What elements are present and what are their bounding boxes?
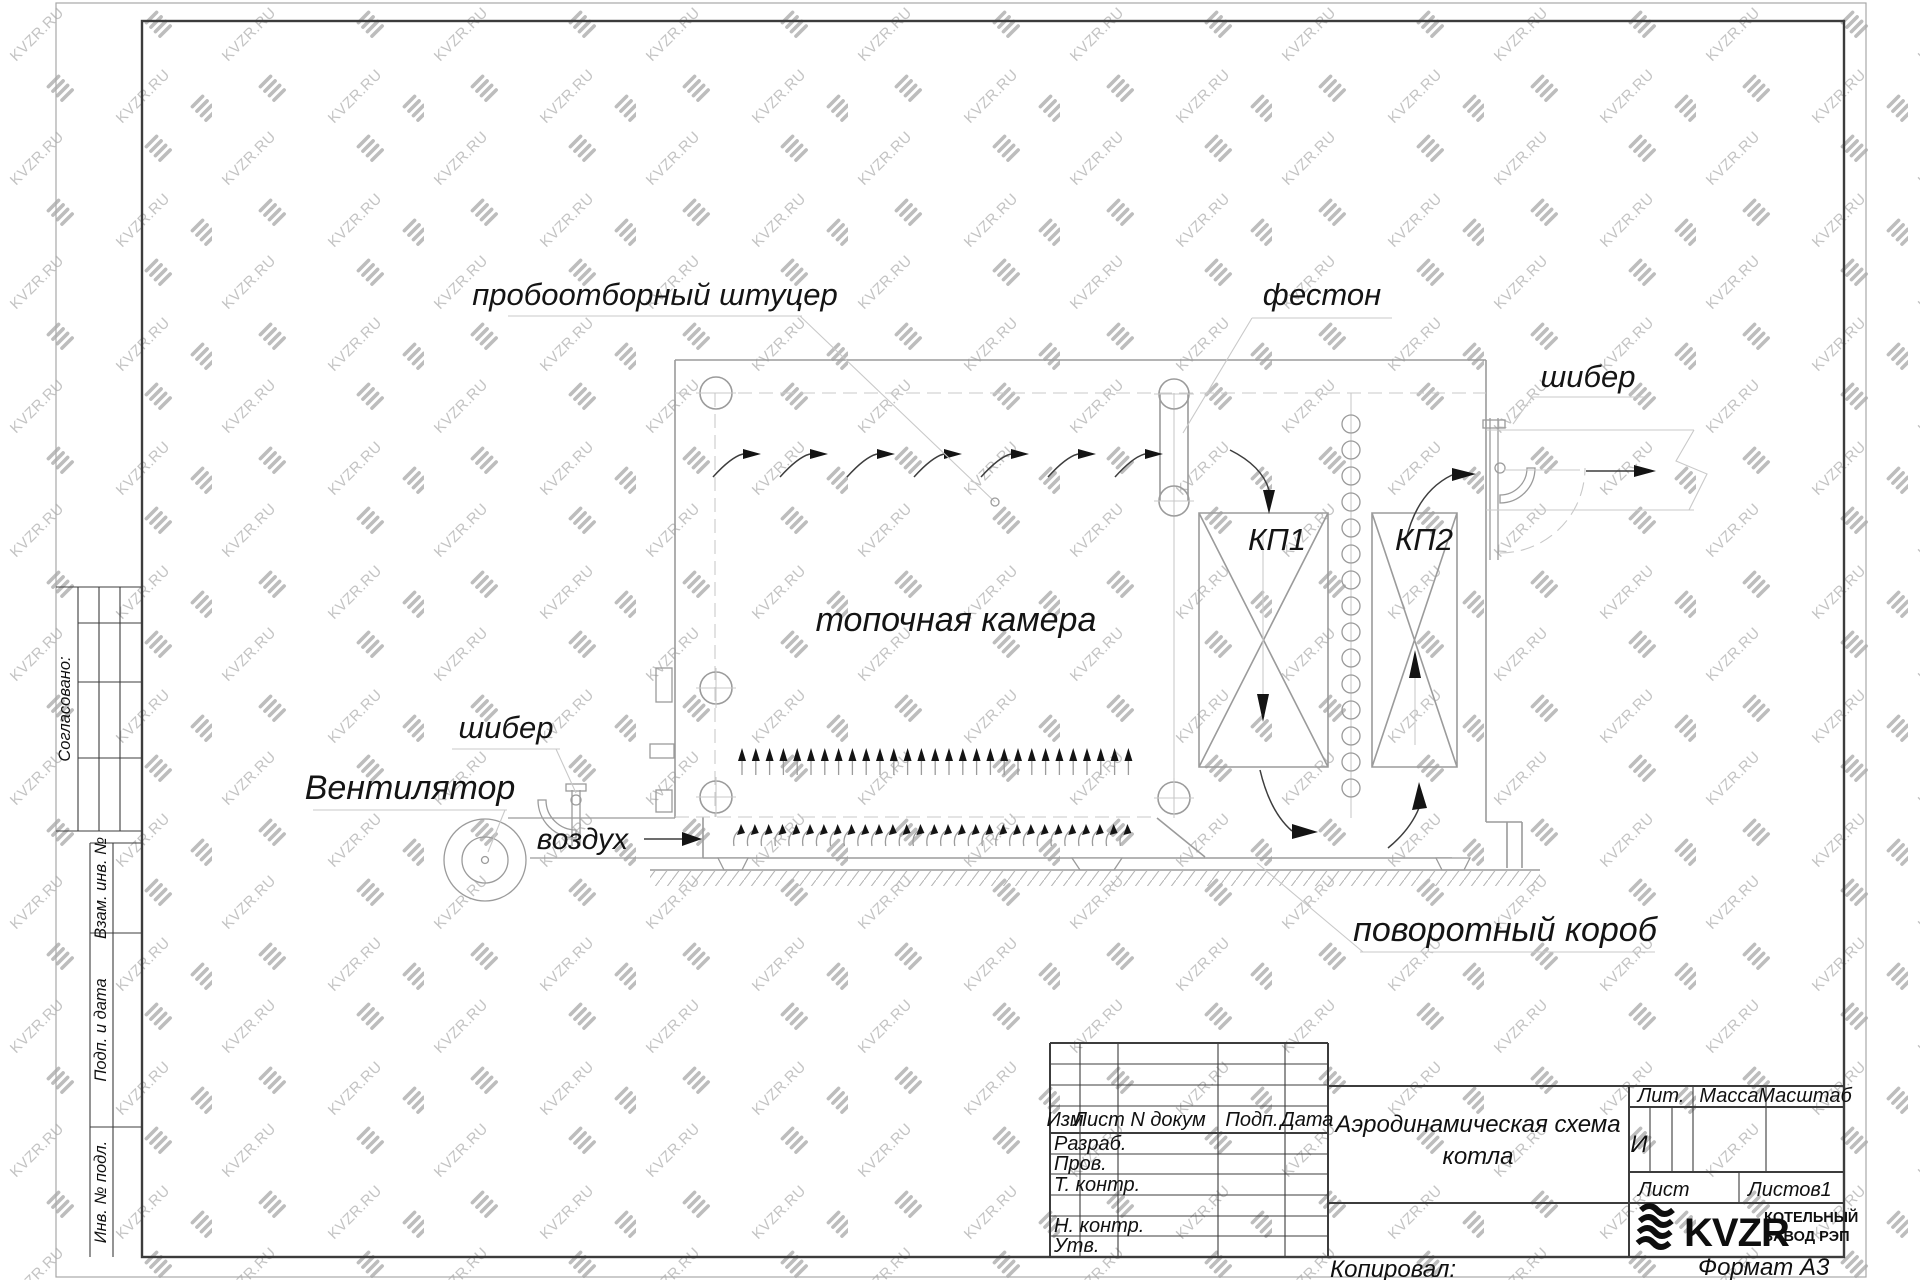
row-checked: Пров. [1054,1153,1107,1175]
label-kp2: КП2 [1395,522,1453,557]
document-title-line2: котла [1442,1143,1513,1170]
drawing-sheet: KVZR.RU KVZR.RU [0,0,1920,1280]
stamp-agreed-label: Согласовано: [56,656,74,761]
label-air: воздух [537,823,629,856]
lit-label: Лит. [1636,1085,1685,1107]
boiler-aerodynamic-scheme: KVZR.RU KVZR.RU [0,0,1920,1280]
col-podp: Подп. [1225,1109,1278,1131]
label-kp1: КП1 [1248,522,1306,557]
scale-label: Масштаб [1758,1085,1852,1107]
label-furnace-chamber: топочная камера [816,601,1097,639]
lit-value: И [1630,1131,1648,1158]
sheet-label: Лист [1636,1179,1690,1201]
copied-label: Копировал: [1330,1256,1456,1280]
stamp-replace-inv-label: Взам. инв. № [92,837,110,939]
ground-hatch [650,871,1540,886]
label-turning-duct: поворотный короб [1353,911,1659,949]
col-data: Дата [1279,1109,1334,1131]
label-sampling-fitting: пробоотборный штуцер [472,277,838,312]
row-approved: Утв. [1053,1235,1099,1257]
stamp-sign-date-label: Подп. и дата [92,978,110,1081]
watermark-layer [0,0,1920,1280]
label-damper-outlet: шибер [1541,359,1636,394]
stamp-inv-orig-label: Инв. № подл. [92,1141,110,1243]
row-developed: Разраб. [1054,1133,1126,1155]
col-list: Лист [1071,1109,1125,1131]
sheets-label: Листов [1746,1179,1821,1201]
document-title-line1: Аэродинамическая схема [1333,1111,1620,1138]
brand-line1: КОТЕЛЬНЫЙ [1764,1208,1858,1226]
label-fan: Вентилятор [305,769,516,807]
mass-label: Масса [1699,1085,1758,1107]
format-label: Формат А3 [1698,1254,1830,1280]
col-ndoc: N докум [1130,1109,1206,1131]
row-tcontrol: Т. контр. [1054,1174,1140,1196]
label-festoon: фестон [1263,277,1381,312]
sheets-value: 1 [1820,1179,1831,1201]
grate-air-arrows [738,748,1132,775]
label-damper-inlet: шибер [459,710,554,745]
brand-line2: ЗАВОД РЭП [1764,1229,1850,1245]
row-ncontrol: Н. контр. [1054,1215,1144,1237]
